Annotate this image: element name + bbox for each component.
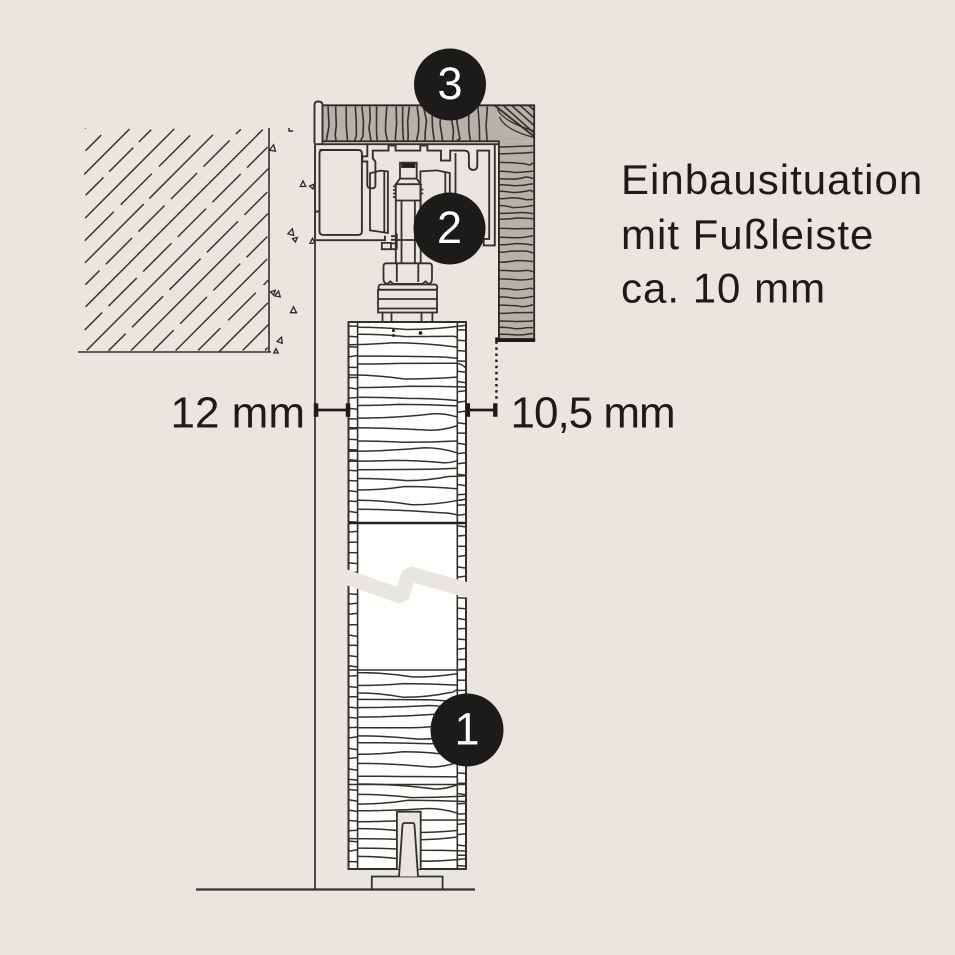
svg-text:ca. 10 mm: ca. 10 mm bbox=[621, 265, 826, 312]
svg-text:1: 1 bbox=[454, 704, 479, 755]
svg-text:2: 2 bbox=[437, 202, 462, 253]
svg-text:mit Fußleiste: mit Fußleiste bbox=[621, 211, 874, 258]
svg-text:10,5 mm: 10,5 mm bbox=[511, 389, 675, 438]
svg-text:3: 3 bbox=[437, 58, 462, 109]
svg-text:Einbausituation: Einbausituation bbox=[621, 156, 923, 203]
svg-text:12 mm: 12 mm bbox=[171, 389, 305, 438]
